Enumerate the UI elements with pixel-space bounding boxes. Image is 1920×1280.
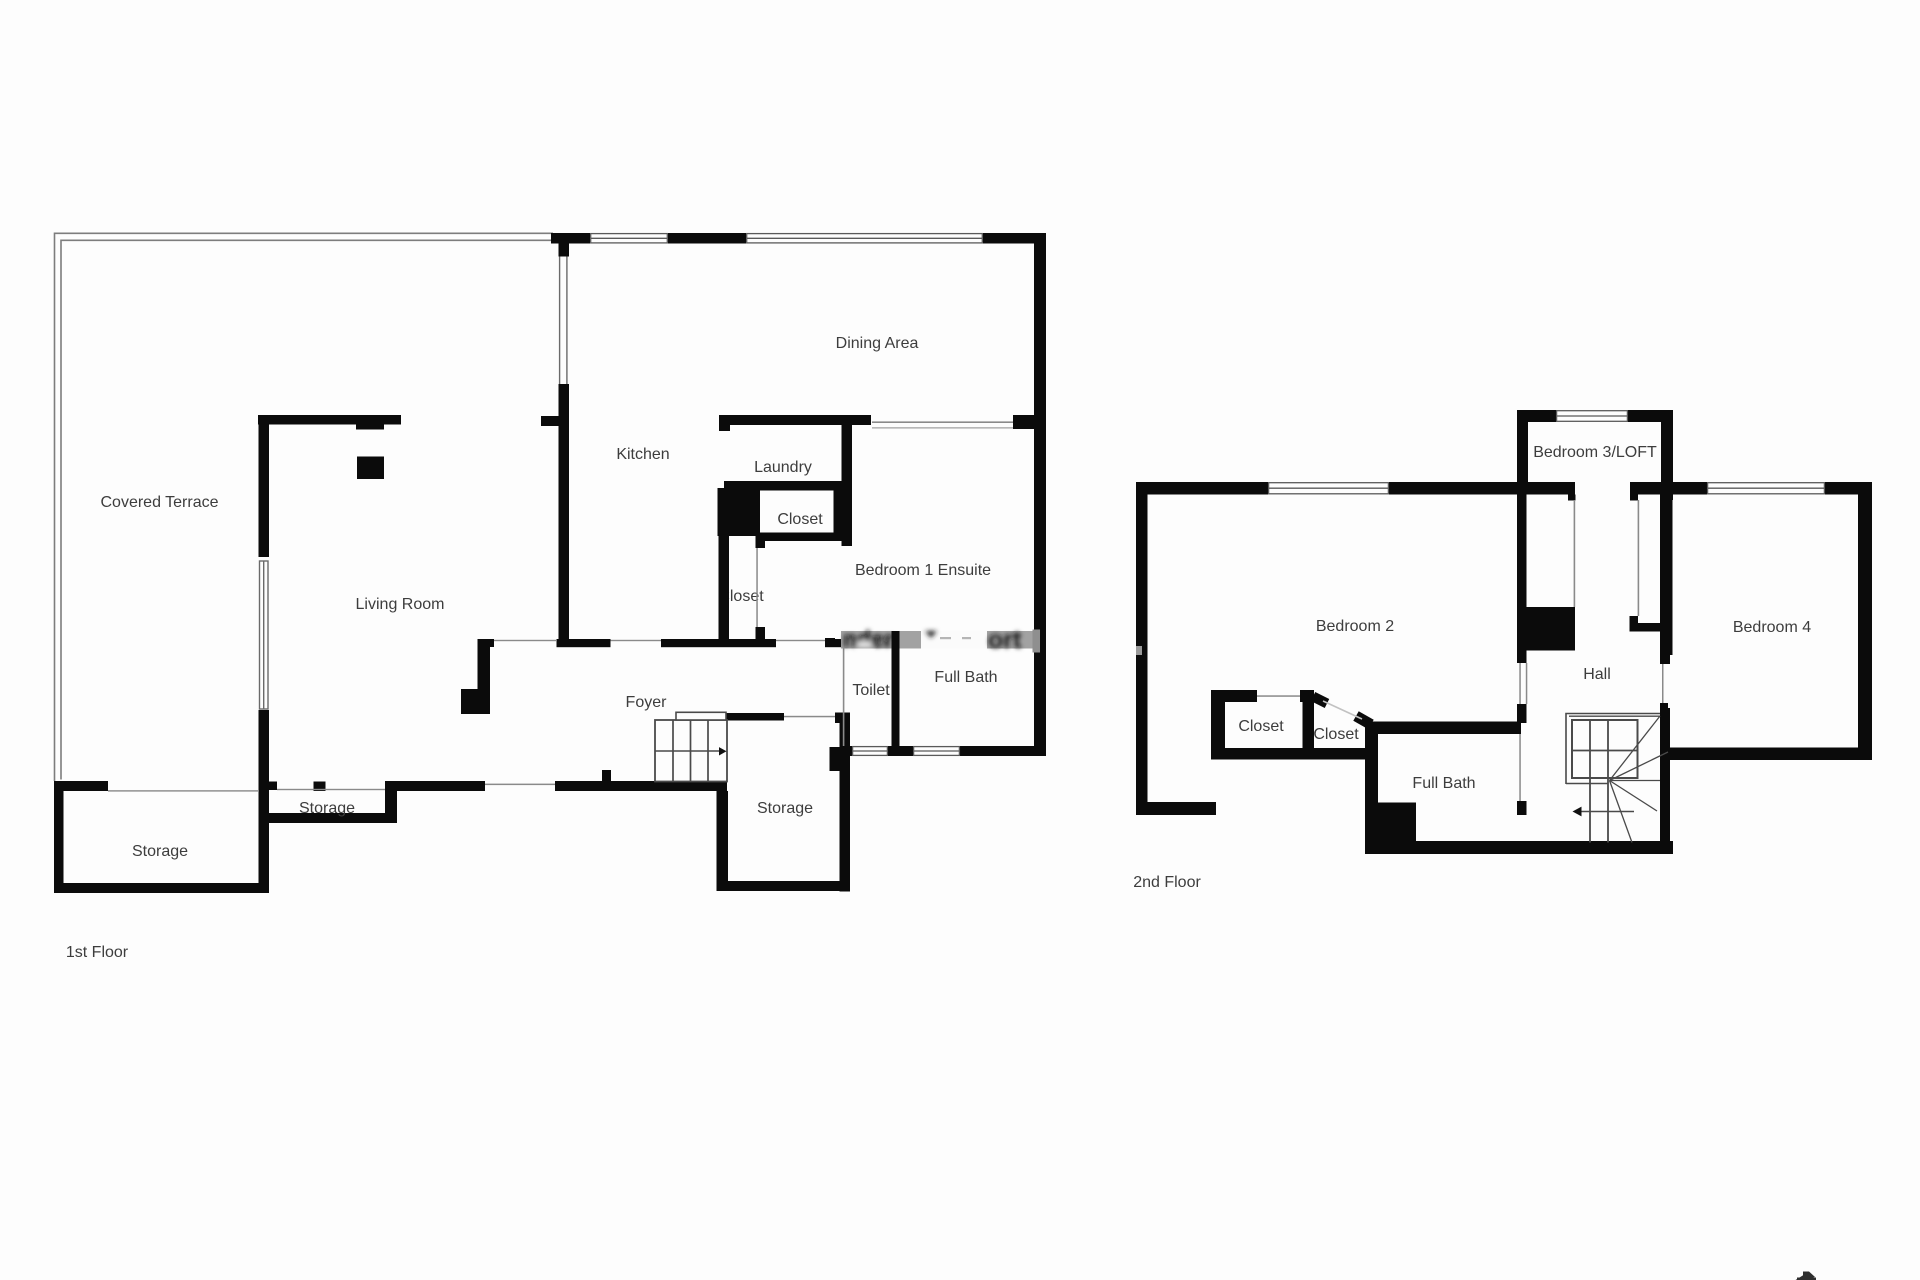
svg-text:Laundry: Laundry bbox=[754, 459, 812, 476]
svg-text:Closet: Closet bbox=[1313, 726, 1359, 743]
svg-text:Bedroom 4: Bedroom 4 bbox=[1733, 619, 1811, 636]
svg-text:Dining Area: Dining Area bbox=[836, 335, 919, 352]
svg-text:Kitchen: Kitchen bbox=[616, 446, 669, 463]
svg-text:Storage: Storage bbox=[757, 800, 813, 817]
svg-text:Full Bath: Full Bath bbox=[1412, 775, 1475, 792]
svg-text:Closet: Closet bbox=[1238, 718, 1284, 735]
svg-text:Storage: Storage bbox=[299, 800, 355, 817]
svg-text:Bedroom 1 Ensuite: Bedroom 1 Ensuite bbox=[855, 562, 991, 579]
svg-text:Bedroom 2: Bedroom 2 bbox=[1316, 618, 1394, 635]
svg-text:Bedroom 3/LOFT: Bedroom 3/LOFT bbox=[1533, 444, 1657, 461]
svg-text:ort: ort bbox=[988, 626, 1022, 654]
svg-text:1st Floor: 1st Floor bbox=[66, 944, 129, 961]
svg-text:Hall: Hall bbox=[1583, 666, 1611, 683]
svg-text:Foyer: Foyer bbox=[626, 694, 668, 711]
svg-text:Toilet: Toilet bbox=[852, 682, 890, 699]
svg-text:Storage: Storage bbox=[132, 843, 188, 860]
svg-text:Living Room: Living Room bbox=[356, 596, 445, 613]
svg-text:2nd Floor: 2nd Floor bbox=[1133, 874, 1201, 891]
svg-text:Covered Terrace: Covered Terrace bbox=[101, 494, 219, 511]
svg-text:Full Bath: Full Bath bbox=[934, 669, 997, 686]
svg-text:nder: nder bbox=[843, 626, 893, 652]
svg-text:Closet: Closet bbox=[777, 511, 823, 528]
